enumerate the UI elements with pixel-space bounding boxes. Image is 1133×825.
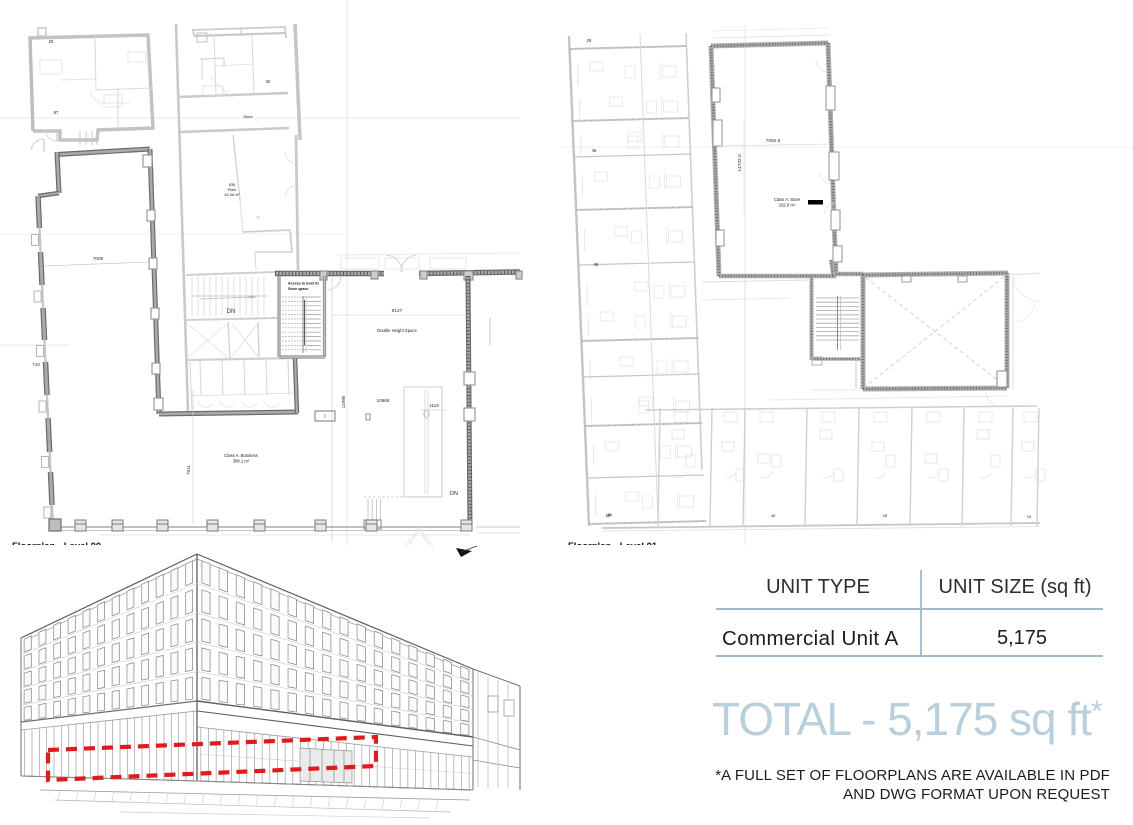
svg-text:Class A: Store: Class A: Store [774,197,801,202]
svg-text:15: 15 [1027,515,1031,519]
svg-text:Store space: Store space [288,287,308,291]
svg-text:835: 835 [229,183,235,187]
svg-text:9127: 9127 [392,308,403,314]
svg-text:10968: 10968 [377,398,390,403]
svg-text:Store: Store [243,114,253,119]
svg-text:DN: DN [450,491,458,497]
svg-text:7050.5: 7050.5 [766,138,781,144]
svg-text:45: 45 [771,514,775,518]
svg-text:28: 28 [883,514,887,518]
svg-text:162.6 m²: 162.6 m² [779,203,796,208]
svg-text:710: 710 [32,362,40,367]
svg-text:62.08 m²: 62.08 m² [225,193,241,197]
svg-text:Access to level 01: Access to level 01 [288,282,319,286]
svg-text:29: 29 [49,39,54,44]
svg-text:Plant: Plant [228,188,238,192]
svg-text:70: 70 [256,216,260,220]
svg-text:7011: 7011 [186,465,191,475]
svg-text:45: 45 [594,262,599,267]
svg-text:Stair: Stair [248,295,256,299]
svg-text:87: 87 [54,110,59,115]
svg-text:45: 45 [592,148,597,153]
svg-text:DN: DN [227,309,236,315]
svg-text:28: 28 [587,38,592,43]
svg-text:7009: 7009 [93,256,104,261]
svg-text:14702.0: 14702.0 [737,154,743,172]
svg-text:Double Height Space: Double Height Space [377,328,417,333]
svg-text:388.1 m²: 388.1 m² [233,459,250,464]
svg-text:11995: 11995 [341,395,346,408]
svg-text:30: 30 [266,79,271,84]
svg-text:56: 56 [608,513,612,517]
svg-text:Class A: Business: Class A: Business [224,453,258,458]
svg-text:1119: 1119 [429,403,439,408]
